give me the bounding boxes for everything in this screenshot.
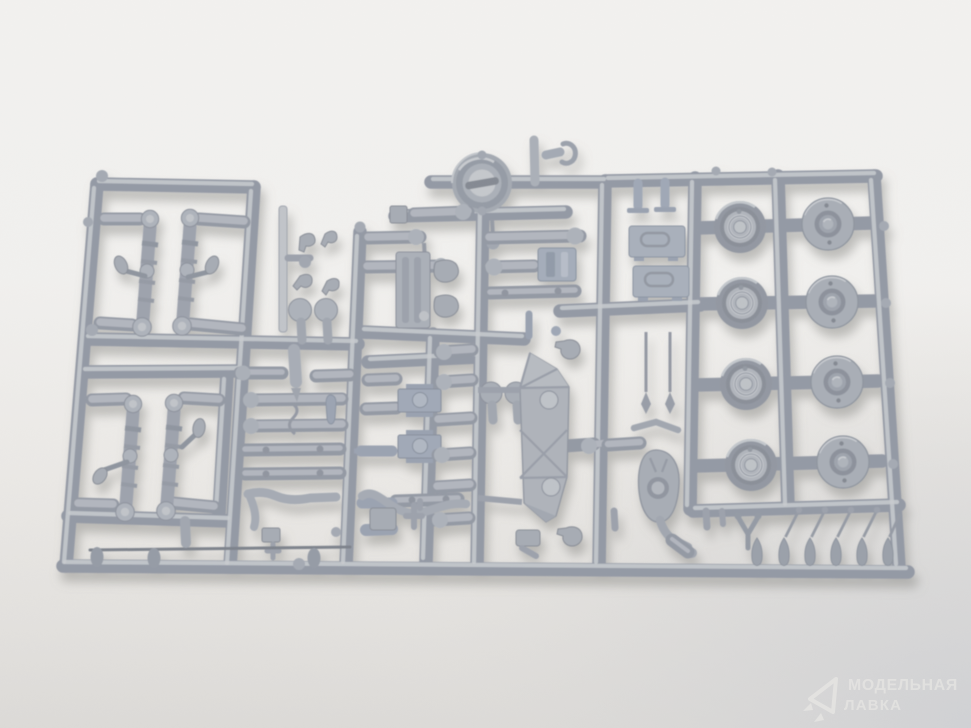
svg-text:ЛАВКА: ЛАВКА: [844, 697, 902, 714]
svg-text:МОДЕЛЬНАЯ: МОДЕЛЬНАЯ: [848, 677, 958, 694]
